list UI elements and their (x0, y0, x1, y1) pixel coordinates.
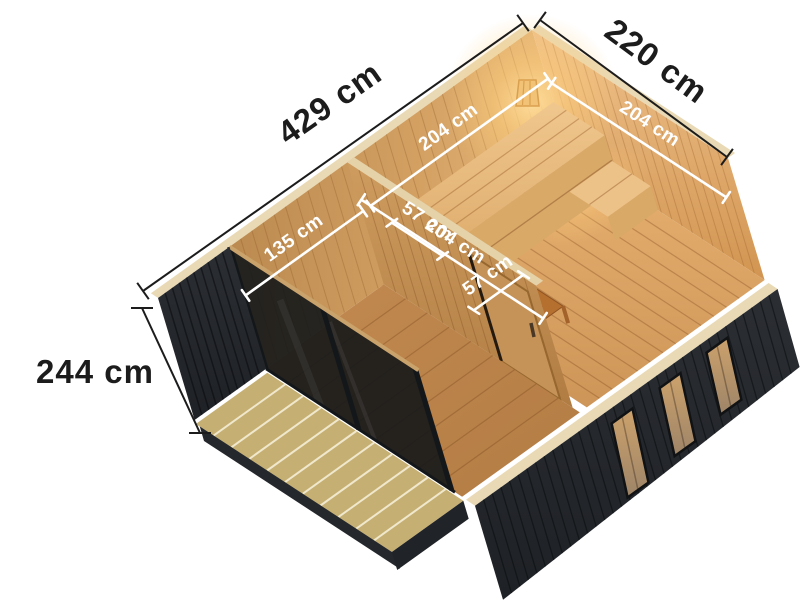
sauna-cabin-dimension-diagram: 204 cm 204 cm 57 cm 57 cm 135 cm 204 cm … (0, 0, 800, 600)
height-label: 244 cm (36, 353, 154, 390)
product-image-stage: 204 cm 204 cm 57 cm 57 cm 135 cm 204 cm … (0, 0, 800, 600)
